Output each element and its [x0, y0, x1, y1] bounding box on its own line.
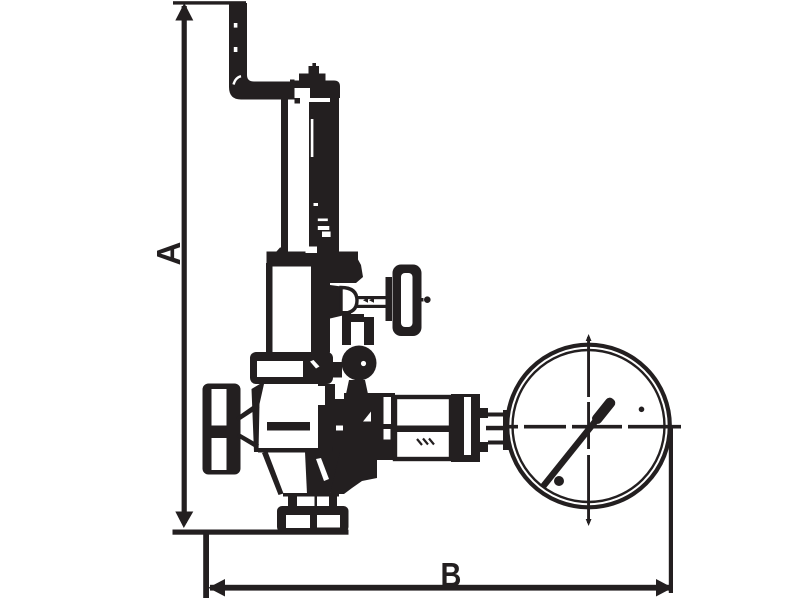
svg-text:B: B: [441, 555, 462, 594]
svg-text:A: A: [150, 242, 187, 266]
